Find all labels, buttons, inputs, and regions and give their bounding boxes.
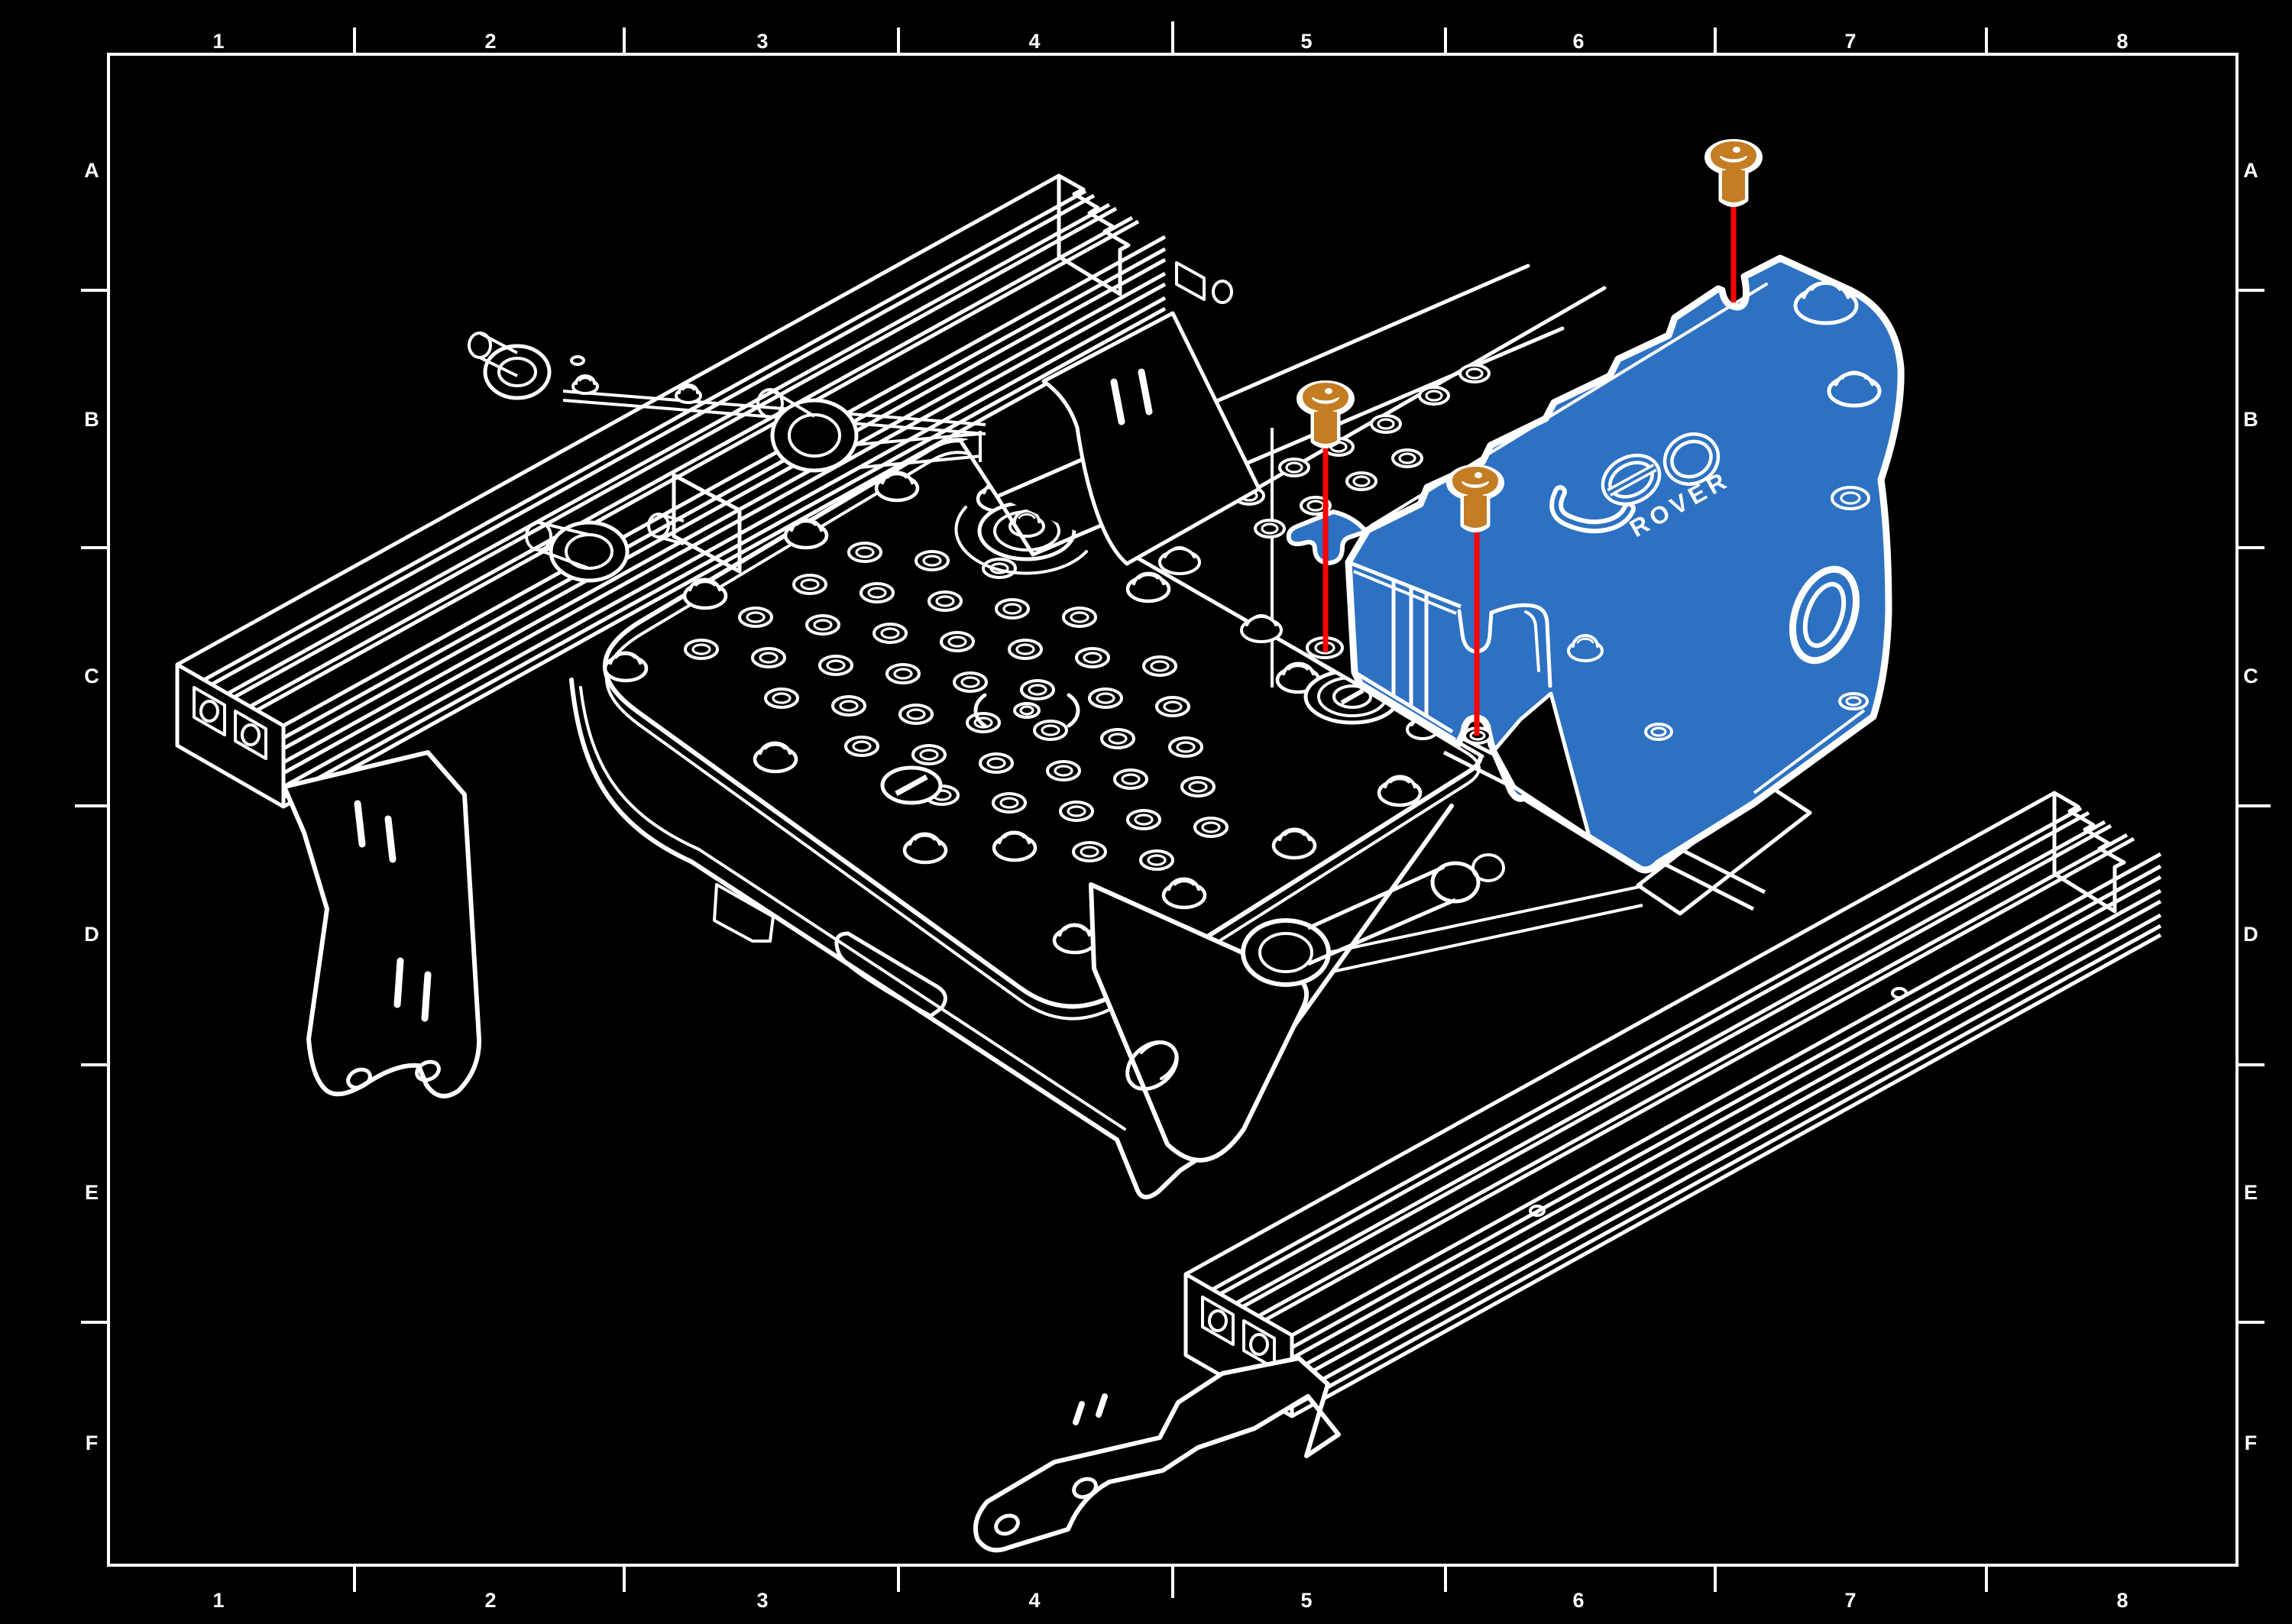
svg-text:1: 1	[212, 1589, 224, 1612]
svg-text:5: 5	[1300, 30, 1312, 53]
svg-text:E: E	[2244, 1181, 2258, 1204]
svg-text:1: 1	[212, 30, 224, 53]
svg-text:B: B	[84, 408, 99, 431]
svg-text:6: 6	[1572, 1589, 1584, 1612]
svg-text:5: 5	[1300, 1589, 1312, 1612]
svg-text:D: D	[2243, 923, 2258, 946]
svg-text:E: E	[85, 1181, 99, 1204]
svg-text:A: A	[84, 159, 99, 182]
svg-text:D: D	[84, 923, 99, 946]
svg-text:7: 7	[1844, 30, 1856, 53]
svg-text:A: A	[2243, 159, 2258, 182]
svg-text:C: C	[84, 665, 99, 687]
svg-text:8: 8	[2116, 30, 2128, 53]
svg-text:2: 2	[484, 30, 496, 53]
svg-text:2: 2	[484, 1589, 496, 1612]
svg-text:F: F	[2245, 1432, 2258, 1454]
svg-text:4: 4	[1028, 1589, 1040, 1612]
svg-text:7: 7	[1844, 1589, 1856, 1612]
svg-text:8: 8	[2116, 1589, 2128, 1612]
svg-text:B: B	[2243, 408, 2258, 431]
svg-text:3: 3	[756, 1589, 768, 1612]
svg-text:3: 3	[756, 30, 768, 53]
svg-text:4: 4	[1028, 30, 1040, 53]
svg-text:6: 6	[1572, 30, 1584, 53]
svg-text:F: F	[86, 1432, 99, 1454]
svg-text:C: C	[2243, 665, 2258, 687]
